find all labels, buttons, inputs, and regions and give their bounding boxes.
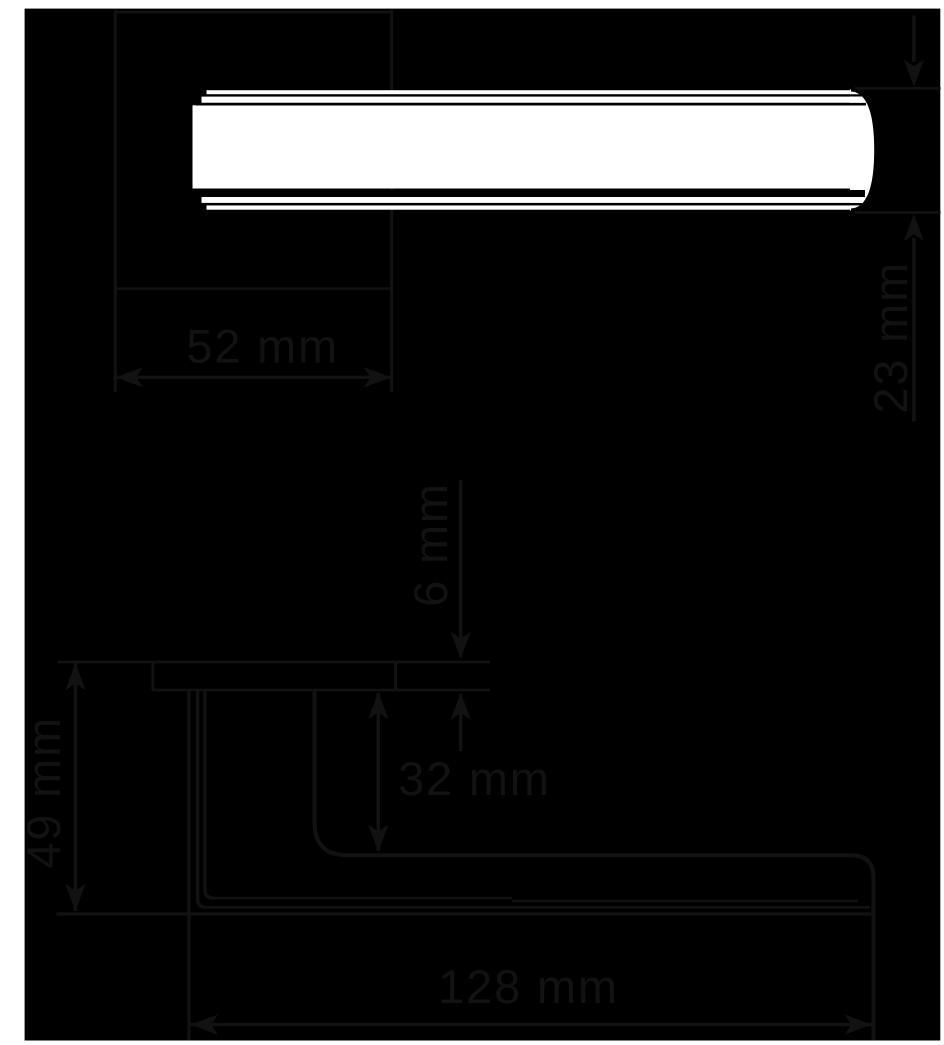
svg-text:52 mm: 52 mm [186,320,339,373]
svg-text:23 mm: 23 mm [864,261,917,414]
svg-text:128 mm: 128 mm [438,960,619,1013]
svg-text:6 mm: 6 mm [404,482,457,607]
svg-text:32 mm: 32 mm [398,752,551,805]
svg-text:49 mm: 49 mm [17,716,70,869]
